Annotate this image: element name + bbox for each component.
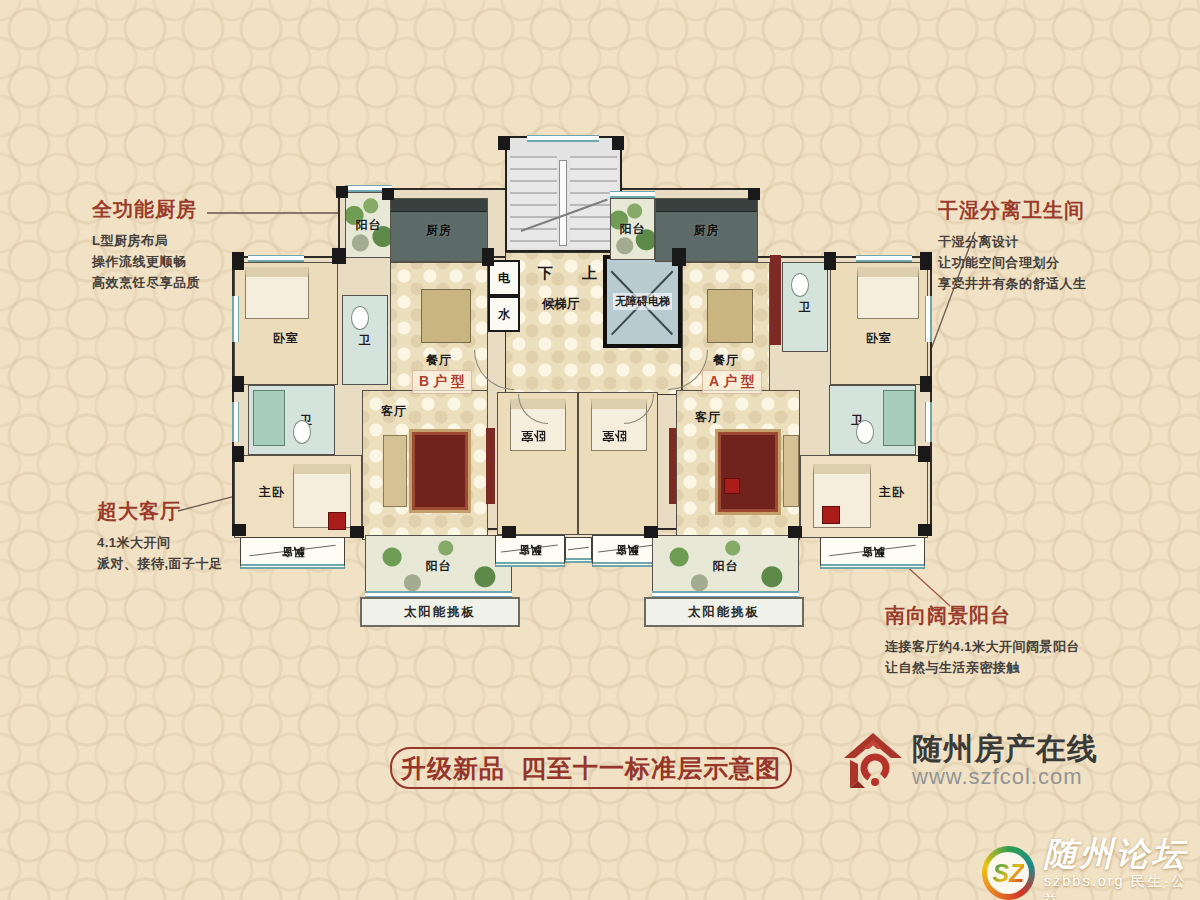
elevator-hall-label: 候梯厅 <box>542 296 580 313</box>
wall-pier <box>920 376 932 392</box>
annotation-kitchen-line: 高效烹饪尽享品质 <box>92 272 312 293</box>
watermark-logo-inner: SZ <box>987 852 1029 894</box>
wall-pier <box>644 526 658 538</box>
accent-chair <box>328 512 346 530</box>
room-label-balcony: 阳台 <box>713 558 739 575</box>
floor-plan: 下 上 候梯厅 电 水 无障碍电梯 阳台 厨房 餐厅 卧室 卫 卫 客厅 <box>232 136 932 630</box>
kitchen-left: 厨房 <box>390 198 488 262</box>
balcony-bottom-left: 阳台 <box>365 535 512 597</box>
annotation-kitchen: 全功能厨房 L型厨房布局 操作流线更顺畅 高效烹饪尽享品质 <box>92 196 312 293</box>
room-label-bedroom: 卧室 <box>866 330 892 347</box>
room-label-dining: 餐厅 <box>713 352 739 369</box>
accent-chair <box>822 506 840 524</box>
annotation-kitchen-line: L型厨房布局 <box>92 230 312 251</box>
wall-pier <box>788 526 802 538</box>
window-strip <box>232 402 239 442</box>
annotation-balcony-title: 南向阔景阳台 <box>885 602 1165 629</box>
annotation-balcony-line: 让自然与生活亲密接触 <box>885 657 1165 678</box>
balcony-top-right: 阳台 <box>610 198 655 260</box>
annotation-living: 超大客厅 4.1米大开间 派对、接待,面子十足 <box>97 498 327 574</box>
room-label-dining: 餐厅 <box>426 352 452 369</box>
window-strip <box>856 255 912 262</box>
annotation-bathroom: 干湿分离卫生间 干湿分离设计 让功能空间合理划分 享受井井有条的舒适人生 <box>938 197 1178 294</box>
bed <box>857 267 919 319</box>
brand-name: 随州房产在线 <box>912 733 1098 765</box>
unit-label-a: A户型 <box>702 370 762 394</box>
wall-pier <box>672 248 686 266</box>
bay-window-center-left: 飘窗 <box>495 535 565 567</box>
annotation-bathroom-line: 享受井井有条的舒适人生 <box>938 273 1178 294</box>
window-strip <box>610 191 655 198</box>
room-label-bath: 卫 <box>359 332 372 349</box>
page: { "annotations": { "kitchen": { "title":… <box>0 0 1200 900</box>
wall-pier <box>612 136 624 150</box>
watermark-name: 随州论坛 <box>1044 836 1200 872</box>
room-label-bay-window: 飘窗 <box>615 542 639 557</box>
brand-text: 随州房产在线 www.szfcol.com <box>912 733 1098 789</box>
room-label-solar: 太阳能挑板 <box>688 604 761 621</box>
room-label-balcony: 阳台 <box>426 558 452 575</box>
bath-upper-right: 卫 <box>782 262 828 352</box>
wall-accent-strip <box>770 255 781 345</box>
stair-treads <box>510 156 557 248</box>
living-rug <box>715 429 781 515</box>
living-rug <box>409 429 471 513</box>
accessible-elevator: 无障碍电梯 <box>603 255 682 348</box>
living-right: 客厅 <box>676 390 800 540</box>
wall-pier <box>918 524 932 536</box>
stairs-up-label: 上 <box>582 264 597 283</box>
wall-pier <box>824 252 836 270</box>
bay-window-right: 飘窗 <box>820 537 925 569</box>
banner-text: 升级新品 四至十一标准层示意图 <box>401 752 781 785</box>
wall-pier <box>502 526 516 538</box>
elevator-label: 无障碍电梯 <box>613 293 672 310</box>
annotation-living-title: 超大客厅 <box>97 498 327 525</box>
dining-table <box>707 289 753 343</box>
sofa <box>783 435 799 507</box>
watermark-monogram: SZ <box>992 859 1024 888</box>
room-label-bedroom: 卧室 <box>520 427 546 444</box>
shower <box>253 390 285 446</box>
wall-pier <box>232 376 244 392</box>
kitchen-right: 厨房 <box>655 198 758 262</box>
wardrobe-strip <box>486 428 495 504</box>
wall-pier <box>498 136 510 150</box>
shower <box>883 390 915 446</box>
bath-lower-left: 卫 <box>248 385 335 455</box>
brand-website: www.szfcol.com <box>912 765 1098 789</box>
room-label-kitchen: 厨房 <box>426 222 452 239</box>
kitchen-counter <box>391 199 487 212</box>
toilet <box>293 420 311 444</box>
toilet <box>351 306 369 330</box>
watermark-logo-icon: SZ <box>982 846 1035 900</box>
master-bedroom-right: 主卧 <box>800 455 928 538</box>
watermark-tagline: szbbs.org 民生·公益 <box>1044 872 1200 900</box>
toilet <box>856 420 874 444</box>
room-label-living: 客厅 <box>695 409 721 426</box>
house-logo-icon <box>842 731 904 791</box>
room-label-bedroom: 卧室 <box>601 427 627 444</box>
window-strip <box>232 296 239 342</box>
unit-label-b: B户型 <box>412 370 472 394</box>
room-label-bay-window: 飘窗 <box>518 542 542 557</box>
wall-pier <box>336 186 348 198</box>
balcony-bottom-right: 阳台 <box>652 535 799 597</box>
room-label-living: 客厅 <box>381 403 407 420</box>
annotation-bathroom-line: 干湿分离设计 <box>938 231 1178 252</box>
solar-board-left: 太阳能挑板 <box>360 597 520 627</box>
watermark: SZ 随州论坛 szbbs.org 民生·公益 <box>982 836 1200 900</box>
room-label-bedroom: 卧室 <box>273 330 299 347</box>
kitchen-counter <box>656 199 757 212</box>
stairs-down-label: 下 <box>538 264 553 283</box>
living-left: 客厅 <box>362 390 488 540</box>
bath-lower-right: 卫 <box>829 385 916 455</box>
watermark-texts: 随州论坛 szbbs.org 民生·公益 <box>1044 836 1200 900</box>
window-strip <box>527 135 599 142</box>
dining-table <box>421 289 471 343</box>
window-strip <box>925 402 932 442</box>
room-label-bay-window: 飘窗 <box>281 544 305 559</box>
annotation-kitchen-title: 全功能厨房 <box>92 196 312 223</box>
room-label-solar: 太阳能挑板 <box>404 604 477 621</box>
bath-upper-left: 卫 <box>342 295 388 385</box>
sofa <box>383 435 407 507</box>
toilet <box>791 273 809 297</box>
banner: 升级新品 四至十一标准层示意图 <box>390 747 792 789</box>
window-center <box>565 537 592 563</box>
annotation-balcony-line: 连接客厅约4.1米大开间阔景阳台 <box>885 636 1165 657</box>
room-label-bath: 卫 <box>799 299 812 316</box>
annotation-kitchen-line: 操作流线更顺畅 <box>92 251 312 272</box>
water-shaft-label: 水 <box>498 306 510 323</box>
wall-pier <box>232 446 244 462</box>
stairwell <box>505 136 622 252</box>
solar-board-right: 太阳能挑板 <box>644 597 804 627</box>
wall-pier <box>748 188 760 200</box>
wall-pier <box>382 188 394 200</box>
stair-divider <box>559 160 567 246</box>
power-shaft-label: 电 <box>498 270 510 287</box>
room-label-bay-window: 飘窗 <box>861 544 885 559</box>
wall-pier <box>332 248 346 264</box>
wall-pier <box>482 248 494 266</box>
annotation-balcony: 南向阔景阳台 连接客厅约4.1米大开间阔景阳台 让自然与生活亲密接触 <box>885 602 1165 678</box>
room-label-kitchen: 厨房 <box>694 222 720 239</box>
wall-pier <box>920 252 932 270</box>
room-label-master: 主卧 <box>879 484 905 501</box>
bedroom-top-right: 卧室 <box>830 262 928 385</box>
red-pillow <box>724 478 740 494</box>
annotation-bathroom-line: 让功能空间合理划分 <box>938 252 1178 273</box>
room-label-balcony: 阳台 <box>356 217 382 234</box>
annotation-bathroom-title: 干湿分离卫生间 <box>938 197 1178 224</box>
water-shaft: 水 <box>488 296 520 332</box>
room-label-balcony: 阳台 <box>620 221 646 238</box>
wall-pier <box>350 526 364 538</box>
wall-pier <box>918 446 930 462</box>
balcony-top-left: 阳台 <box>345 192 392 258</box>
brand: 随州房产在线 www.szfcol.com <box>842 731 1098 791</box>
window-strip <box>925 296 932 342</box>
